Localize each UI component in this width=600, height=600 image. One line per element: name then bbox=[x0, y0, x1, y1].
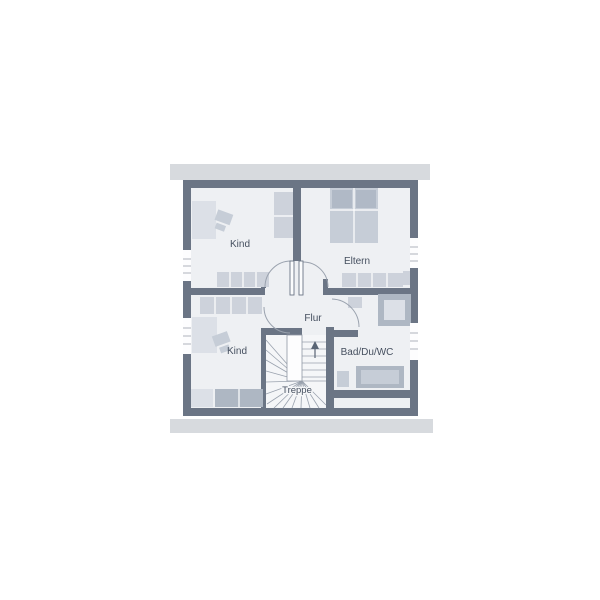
room-label-bad: Bad/Du/WC bbox=[341, 347, 394, 358]
pillow bbox=[332, 190, 352, 208]
bottom-eaves-bar bbox=[170, 419, 433, 433]
nightstand bbox=[403, 271, 410, 285]
staircase bbox=[266, 335, 326, 408]
wall-kind-eltern bbox=[293, 188, 301, 261]
bed bbox=[192, 201, 216, 239]
window-left-upper bbox=[183, 250, 191, 281]
window-right-upper bbox=[410, 238, 418, 268]
bed-pillow bbox=[191, 389, 213, 407]
pillow bbox=[356, 190, 376, 208]
room-label-kind-top: Kind bbox=[230, 239, 250, 250]
floor-plan-drawing: Kind Eltern Flur Kind Bad/Du/WC Treppe bbox=[0, 0, 600, 600]
top-eaves-bar bbox=[170, 164, 430, 180]
stair-void bbox=[287, 335, 302, 381]
toilet bbox=[337, 371, 349, 387]
room-label-kind-bottom: Kind bbox=[227, 346, 247, 357]
bathtub-inner bbox=[361, 370, 399, 384]
room-label-eltern: Eltern bbox=[344, 256, 370, 267]
wall-bad-bottom bbox=[326, 390, 410, 398]
room-label-treppe: Treppe bbox=[282, 385, 312, 396]
wall-kind-kind bbox=[191, 288, 265, 295]
room-label-flur: Flur bbox=[304, 313, 322, 324]
shower-tray bbox=[384, 300, 405, 320]
door-leaf-kind-top bbox=[290, 261, 294, 295]
window-right-lower bbox=[410, 323, 418, 360]
wall-bad-niche bbox=[334, 330, 358, 337]
wall-eltern-bad bbox=[323, 288, 410, 295]
wardrobe bbox=[274, 192, 293, 238]
door-leaf-eltern bbox=[299, 261, 303, 295]
floor-plan-canvas: Kind Eltern Flur Kind Bad/Du/WC Treppe bbox=[0, 0, 600, 600]
bed bbox=[192, 317, 217, 353]
